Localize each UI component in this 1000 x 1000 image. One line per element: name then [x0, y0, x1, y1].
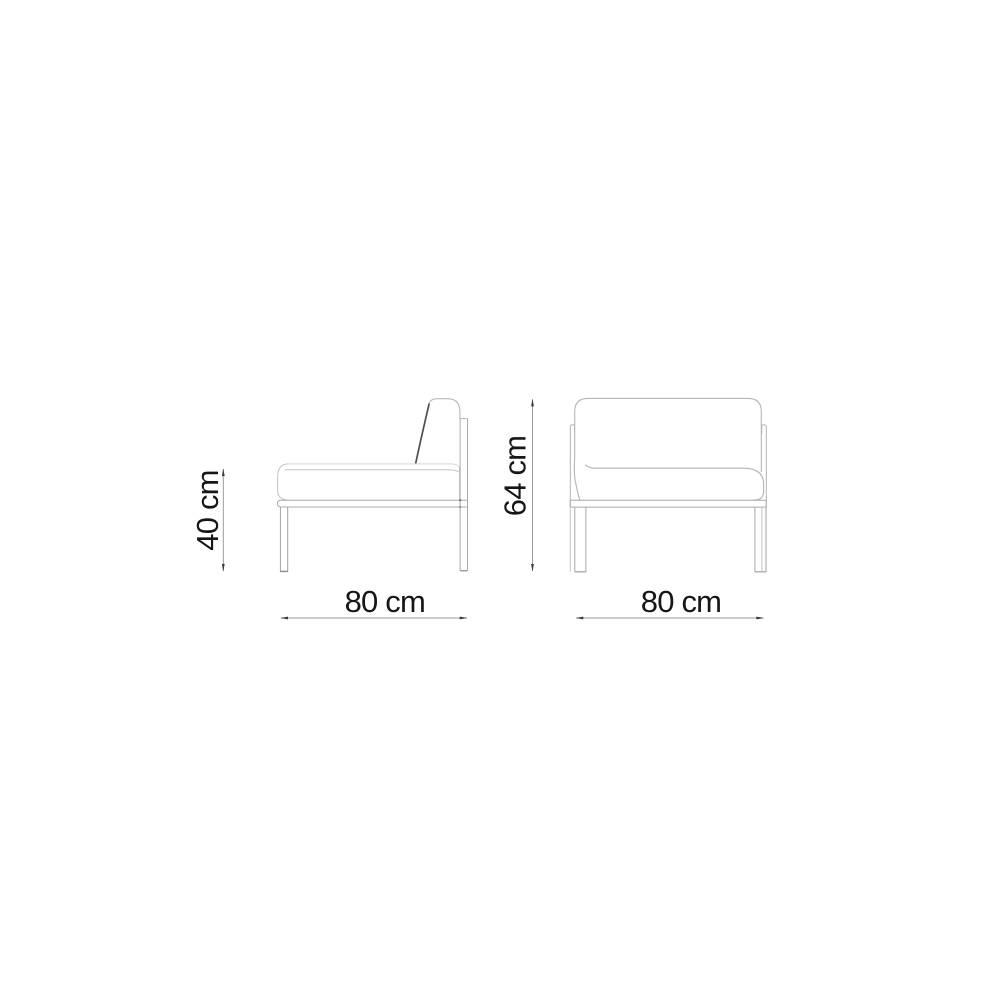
svg-text:40 cm: 40 cm — [190, 470, 225, 550]
svg-text:80 cm: 80 cm — [641, 584, 721, 619]
svg-text:80 cm: 80 cm — [345, 584, 425, 619]
svg-text:64 cm: 64 cm — [498, 436, 533, 516]
